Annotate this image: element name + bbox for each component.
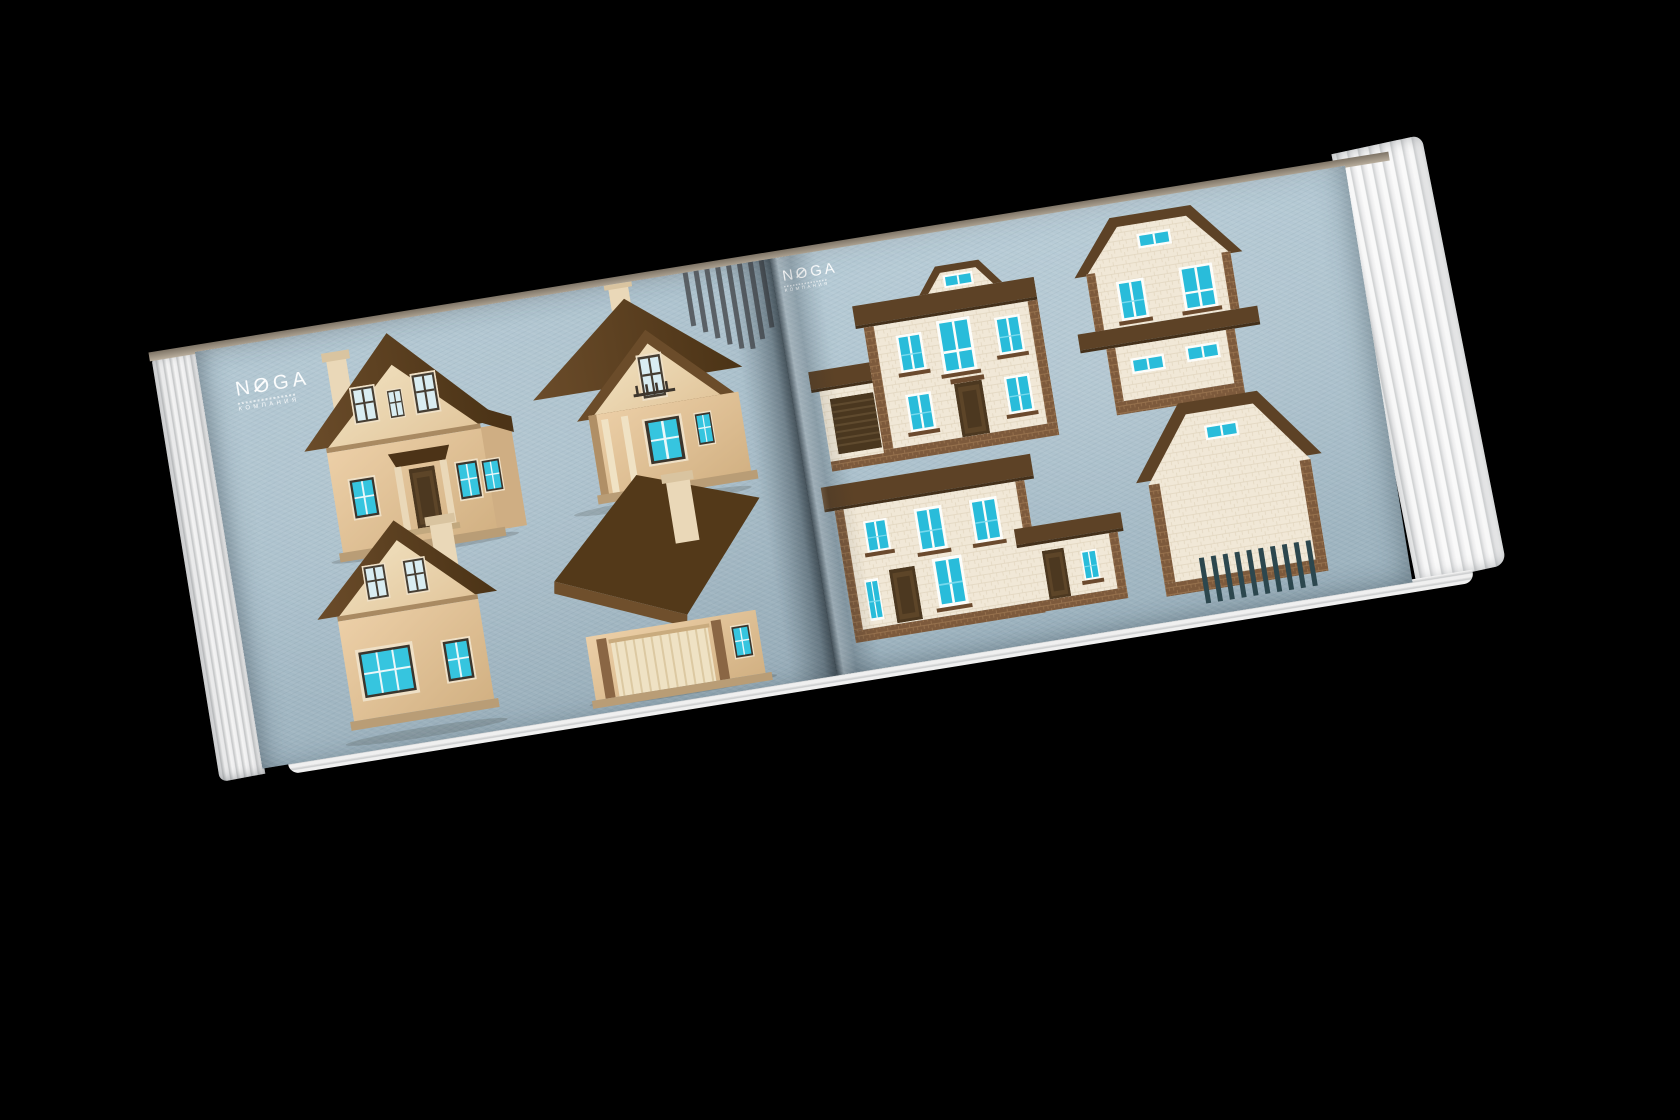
house-render-story-and-half bbox=[302, 498, 518, 754]
brand-name: NOGA bbox=[781, 260, 838, 283]
open-catalog-book: NOGA КОМПАНИЯ bbox=[195, 166, 1412, 769]
scene: { "scene": { "background_color": "#00000… bbox=[0, 0, 1680, 1120]
house-render-roof-garage bbox=[534, 432, 793, 714]
roller-door bbox=[830, 392, 882, 454]
brand-name: NOGA bbox=[234, 368, 311, 400]
stripes-top-left-page bbox=[682, 259, 777, 358]
